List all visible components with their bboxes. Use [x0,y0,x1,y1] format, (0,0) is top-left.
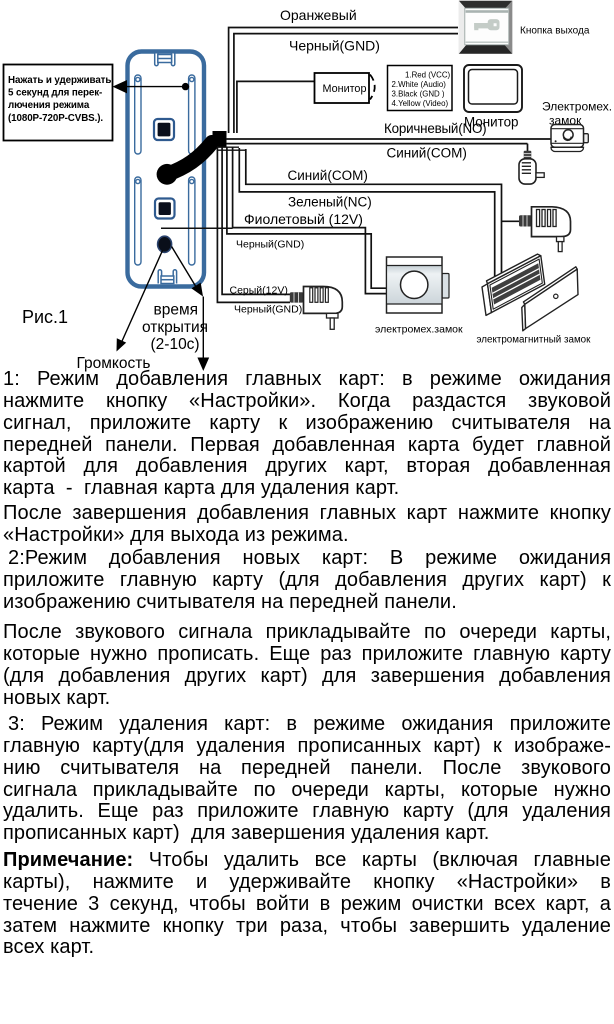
svg-text:Рис.1: Рис.1 [22,307,68,327]
svg-text:Коричневый(NO): Коричневый(NO) [384,121,486,136]
svg-text:Фиолетовый (12V): Фиолетовый (12V) [244,211,363,227]
svg-text:(2-10с): (2-10с) [151,336,200,353]
svg-text:(1080P-720P-CVBS.).: (1080P-720P-CVBS.). [8,113,103,124]
svg-text:Монитор: Монитор [323,83,367,95]
svg-text:электромех.замок: электромех.замок [375,324,463,336]
svg-text:Зеленый(NC): Зеленый(NC) [288,195,372,210]
svg-text:время: время [154,302,199,319]
svg-text:открытия: открытия [142,319,208,336]
svg-text:Синий(COM): Синий(COM) [288,168,368,183]
svg-text:Серый(12V): Серый(12V) [230,285,288,297]
svg-text:2.White (Audio): 2.White (Audio) [392,80,447,89]
svg-text:лючения режима: лючения режима [8,100,90,111]
svg-text:1.Red (VCC): 1.Red (VCC) [405,70,451,79]
svg-text:Черный(GND): Черный(GND) [234,304,302,316]
svg-text:Оранжевый: Оранжевый [280,7,357,23]
svg-text:электромагнитный замок: электромагнитный замок [477,335,592,346]
svg-text:3.Black (GND ): 3.Black (GND ) [392,89,445,98]
svg-text:Электромех.: Электромех. [542,100,612,114]
svg-text:Кнопка выхода: Кнопка выхода [520,26,590,37]
svg-text:Черный(GND): Черный(GND) [236,239,304,251]
svg-text:4.Yellow (Video): 4.Yellow (Video) [392,99,449,108]
svg-text:Синий(COM): Синий(COM) [387,146,467,161]
svg-text:5 секунд для перек-: 5 секунд для перек- [8,88,102,99]
svg-text:Нажать и удерживать: Нажать и удерживать [8,75,111,86]
svg-text:Черный(GND): Черный(GND) [289,38,380,54]
